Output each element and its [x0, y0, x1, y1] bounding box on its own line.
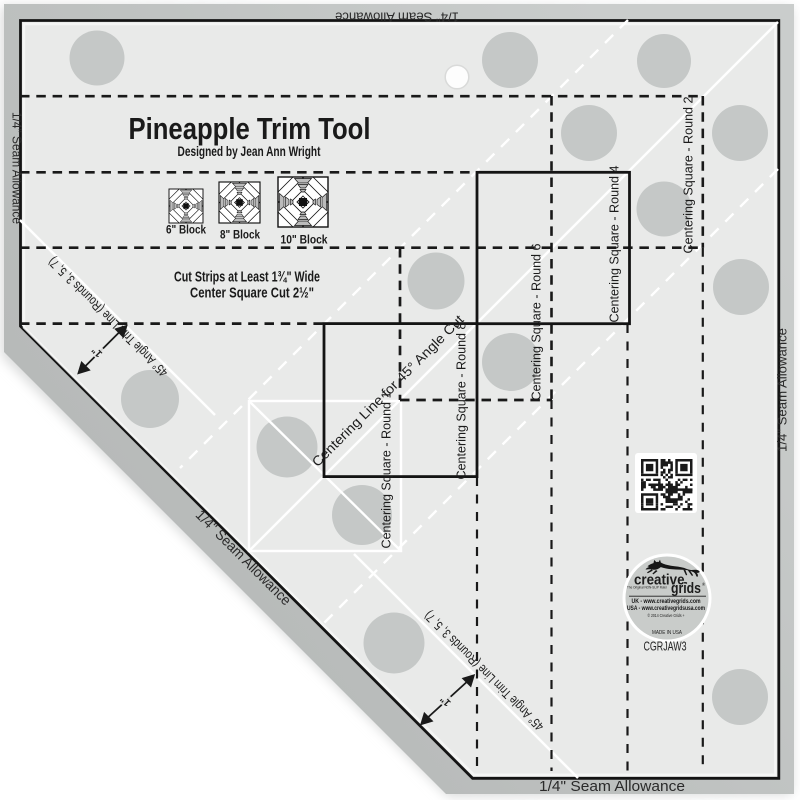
svg-text:Cut Strips at Least 1¾" Wide: Cut Strips at Least 1¾" Wide — [174, 269, 320, 286]
svg-text:8" Block: 8" Block — [220, 228, 260, 242]
svg-text:Designed by Jean Ann Wright: Designed by Jean Ann Wright — [178, 144, 321, 159]
svg-text:Centering Square - Round 4: Centering Square - Round 4 — [607, 166, 622, 323]
svg-text:1/4" Seam Allowance: 1/4" Seam Allowance — [539, 778, 685, 795]
svg-text:USA - www.creativegridsusa.com: USA - www.creativegridsusa.com — [627, 605, 705, 612]
svg-text:The Original NON-SLIP Ruler: The Original NON-SLIP Ruler — [627, 585, 668, 589]
svg-text:© 2014 Creative Grids +: © 2014 Creative Grids + — [648, 612, 685, 618]
svg-text:Centering Square - Round 2: Centering Square - Round 2 — [681, 97, 696, 254]
svg-text:CGRJAW3: CGRJAW3 — [644, 640, 687, 654]
svg-text:1/4" Seam Allowance: 1/4" Seam Allowance — [10, 112, 25, 224]
svg-text:10" Block: 10" Block — [281, 233, 328, 247]
svg-text:Center Square Cut 2½": Center Square Cut 2½" — [190, 285, 314, 302]
svg-text:6" Block: 6" Block — [166, 223, 206, 237]
svg-text:Centering Square - Round 8: Centering Square - Round 8 — [454, 323, 469, 480]
svg-text:1/4" Seam Allowance: 1/4" Seam Allowance — [335, 10, 459, 25]
svg-text:1/4" Seam Allowance: 1/4" Seam Allowance — [775, 328, 790, 452]
svg-text:Centering Square - Round 6: Centering Square - Round 6 — [529, 244, 544, 401]
svg-text:MADE IN USA: MADE IN USA — [652, 630, 683, 636]
svg-text:Pineapple Trim Tool: Pineapple Trim Tool — [129, 112, 371, 146]
svg-text:grids: grids — [671, 580, 701, 597]
svg-text:Centering Square - Round 1: Centering Square - Round 1 — [379, 392, 394, 549]
svg-text:UK - www.creativegrids.com: UK - www.creativegrids.com — [632, 598, 701, 605]
